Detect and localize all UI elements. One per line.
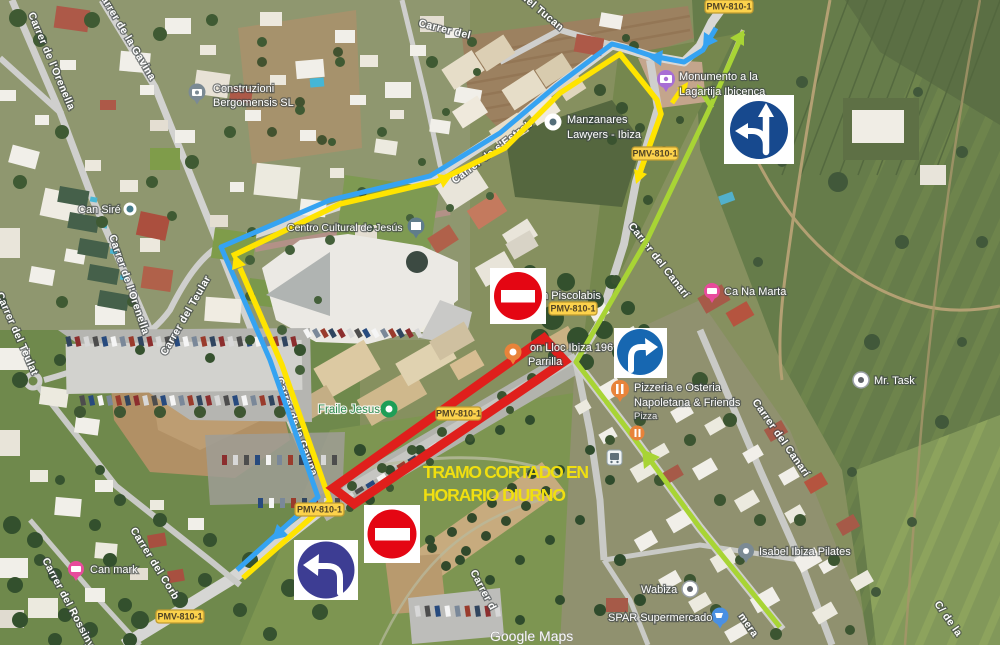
svg-text:Napoletana & Friends: Napoletana & Friends <box>634 397 741 409</box>
svg-text:PMV-810-1: PMV-810-1 <box>157 612 202 622</box>
svg-text:SPAR Supermercado: SPAR Supermercado <box>608 612 712 624</box>
svg-text:Parrilla: Parrilla <box>528 356 563 368</box>
svg-text:Monumento a la: Monumento a la <box>679 71 759 83</box>
svg-text:Can Siré: Can Siré <box>78 204 121 216</box>
svg-text:Pizza: Pizza <box>634 411 658 422</box>
svg-text:Centro Cultural de Jesús: Centro Cultural de Jesús <box>287 222 403 234</box>
svg-text:Construzioni: Construzioni <box>213 83 274 95</box>
svg-text:Mr. Task: Mr. Task <box>874 375 915 387</box>
svg-text:Fraile Jesus: Fraile Jesus <box>318 404 380 416</box>
svg-text:Pizzeria e Osteria: Pizzeria e Osteria <box>634 382 722 394</box>
svg-text:HORARIO DIURNO: HORARIO DIURNO <box>423 485 566 505</box>
svg-text:on Lloc Ibiza 196: on Lloc Ibiza 196 <box>530 342 613 354</box>
svg-text:PMV-810-1: PMV-810-1 <box>297 505 342 515</box>
svg-text:Can mark: Can mark <box>90 564 138 576</box>
svg-text:Ca Na Marta: Ca Na Marta <box>724 286 787 298</box>
svg-text:PMV-810-1: PMV-810-1 <box>550 304 595 314</box>
svg-text:Wabiza: Wabiza <box>641 584 678 596</box>
svg-text:Isabel Ibiza Pilates: Isabel Ibiza Pilates <box>759 546 851 558</box>
svg-text:PMV-810-1: PMV-810-1 <box>706 2 751 12</box>
svg-text:Google Maps: Google Maps <box>490 628 573 644</box>
svg-text:PMV-810-1: PMV-810-1 <box>632 149 677 159</box>
svg-text:TRAMO CORTADO EN: TRAMO CORTADO EN <box>423 462 589 482</box>
svg-text:PMV-810-1: PMV-810-1 <box>436 409 481 419</box>
svg-text:Bergomensis SL: Bergomensis SL <box>213 97 294 109</box>
svg-text:Manzanares: Manzanares <box>567 114 628 126</box>
svg-text:Lawyers - Ibiza: Lawyers - Ibiza <box>567 129 642 141</box>
